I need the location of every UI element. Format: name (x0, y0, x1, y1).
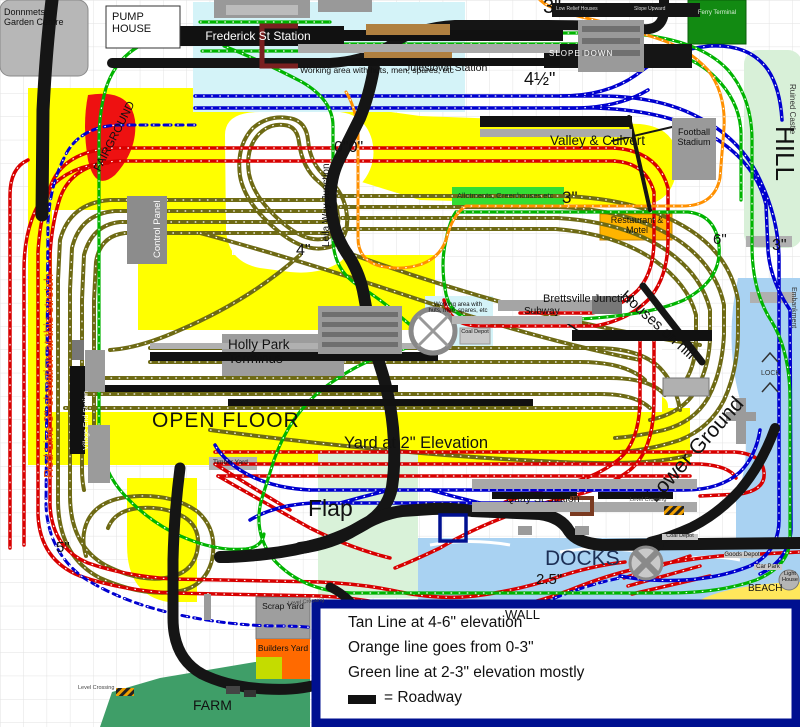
crossing-post (204, 594, 211, 620)
level-crossing-marker (116, 688, 134, 696)
legend-line-3: Green line at 2-3" elevation mostly (348, 665, 584, 681)
frederick-station-label: Frederick St Station (178, 30, 338, 43)
yard-elevation-label: Yard at 2" Elevation (344, 435, 488, 452)
right-elevation-label: 3" (772, 238, 787, 255)
builders-yard-label: Builders Yard (256, 644, 310, 653)
allotments-label: Allotments, Greenhouses etc (457, 192, 553, 200)
goods-depot-label: Goods Depot (724, 552, 760, 558)
level-crossing-marker (664, 506, 684, 515)
light-house-label: Light House (778, 572, 800, 584)
hill-ramp (750, 292, 794, 303)
bridge (663, 378, 709, 396)
legend-line-1: Tan Line at 4-6" elevation (348, 615, 522, 631)
car-park-label: Car Park (754, 564, 782, 570)
subway-label: Subway (524, 307, 560, 318)
low-relief-label: Low Relief Houses (556, 7, 598, 12)
level-crossing-c-label: Level Crossing (78, 686, 114, 692)
track-plan-diagram: Donnmets Garden Centre PUMP HOUSE Workin… (0, 0, 800, 727)
football-stadium-label: Football Stadium (673, 128, 715, 147)
embankment-label: Embankment (790, 287, 797, 328)
holly-park-terminus-label: Holly Park Terminus (228, 338, 340, 367)
julestown-station-label: Julestown Station (405, 63, 487, 74)
farm-vehicle (226, 686, 240, 694)
zero-elevation-label: 0"0" (334, 140, 363, 157)
red-line-note-label: Red Line 3" elevation at this stretch (42, 274, 56, 478)
lock-label: LOCK (761, 370, 780, 377)
garden-centre-label: Donnmets Garden Centre (4, 8, 76, 27)
timber-yard-label: Timber Yard (213, 460, 248, 467)
four-half-elevation-label: 4½" (524, 70, 555, 89)
flap-label: Flap (308, 496, 353, 520)
crane (575, 526, 589, 535)
ferry-label: Ferry Terminal (690, 10, 744, 16)
farm-label: FARM (193, 698, 232, 713)
level-crossing-b-label: Level Crossing (630, 498, 666, 504)
restaurant-motel-label: Restaurant & Motel (602, 216, 672, 235)
beach-label: BEACH (748, 584, 782, 595)
coal-depot-label: Coal Depot (662, 534, 698, 540)
crane (518, 526, 532, 535)
five-elevation-label: 5" (56, 540, 70, 556)
leila-way-junction-label: Leila Way Junction (322, 163, 333, 247)
four-elevation-label: 4" (296, 243, 311, 260)
pump-house-label: PUMP HOUSE (112, 12, 176, 35)
hill-label: HILL (770, 126, 798, 181)
coal-depot-center-label: Coal Depot (460, 330, 490, 336)
six-elevation-label: 6" (713, 232, 727, 248)
slope-down-label: SLOPE DOWN (549, 50, 613, 58)
legend-line-2: Orange line goes from 0-3" (348, 640, 534, 656)
brettsville-junction-label: Brettsville Junction (543, 294, 635, 306)
valley-culvert-label: Valley & Culvert (550, 134, 645, 148)
dock-elevation-label: 2.5" (536, 572, 562, 588)
legend-roadway-label: = Roadway (384, 690, 462, 706)
control-panel-label: Control Panel (153, 200, 163, 258)
farm-vehicle (244, 690, 256, 697)
mid-elevation-label: 3" (562, 189, 578, 207)
working-area-center-label: Working area with huts, men, spares, etc (428, 302, 488, 315)
village-end-station-label: Village End Station (83, 391, 90, 450)
open-floor-label: OPEN FLOOR (152, 410, 300, 432)
slope-upward-label: Slope Upward (634, 7, 665, 12)
roadway-glyph (348, 695, 376, 704)
docks-label: DOCKS (545, 548, 620, 570)
quay-st-station-label: Quay St Station (506, 494, 580, 505)
